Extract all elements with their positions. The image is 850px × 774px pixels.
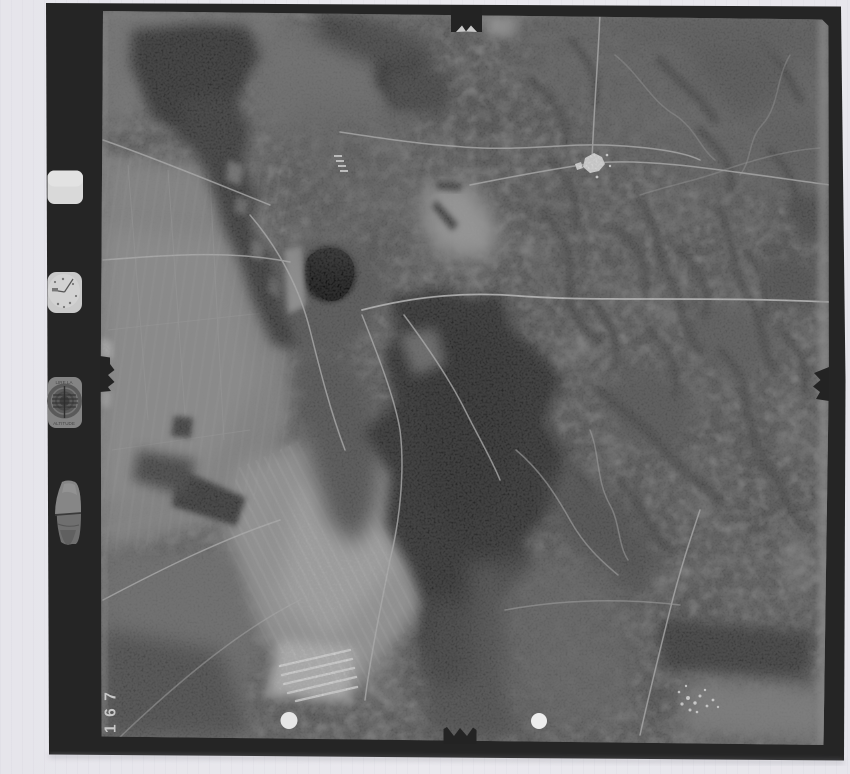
svg-text:ALTITUDE: ALTITUDE xyxy=(53,421,75,426)
svg-text:LIRE LA: LIRE LA xyxy=(55,380,73,385)
svg-text:167: 167 xyxy=(103,685,120,733)
